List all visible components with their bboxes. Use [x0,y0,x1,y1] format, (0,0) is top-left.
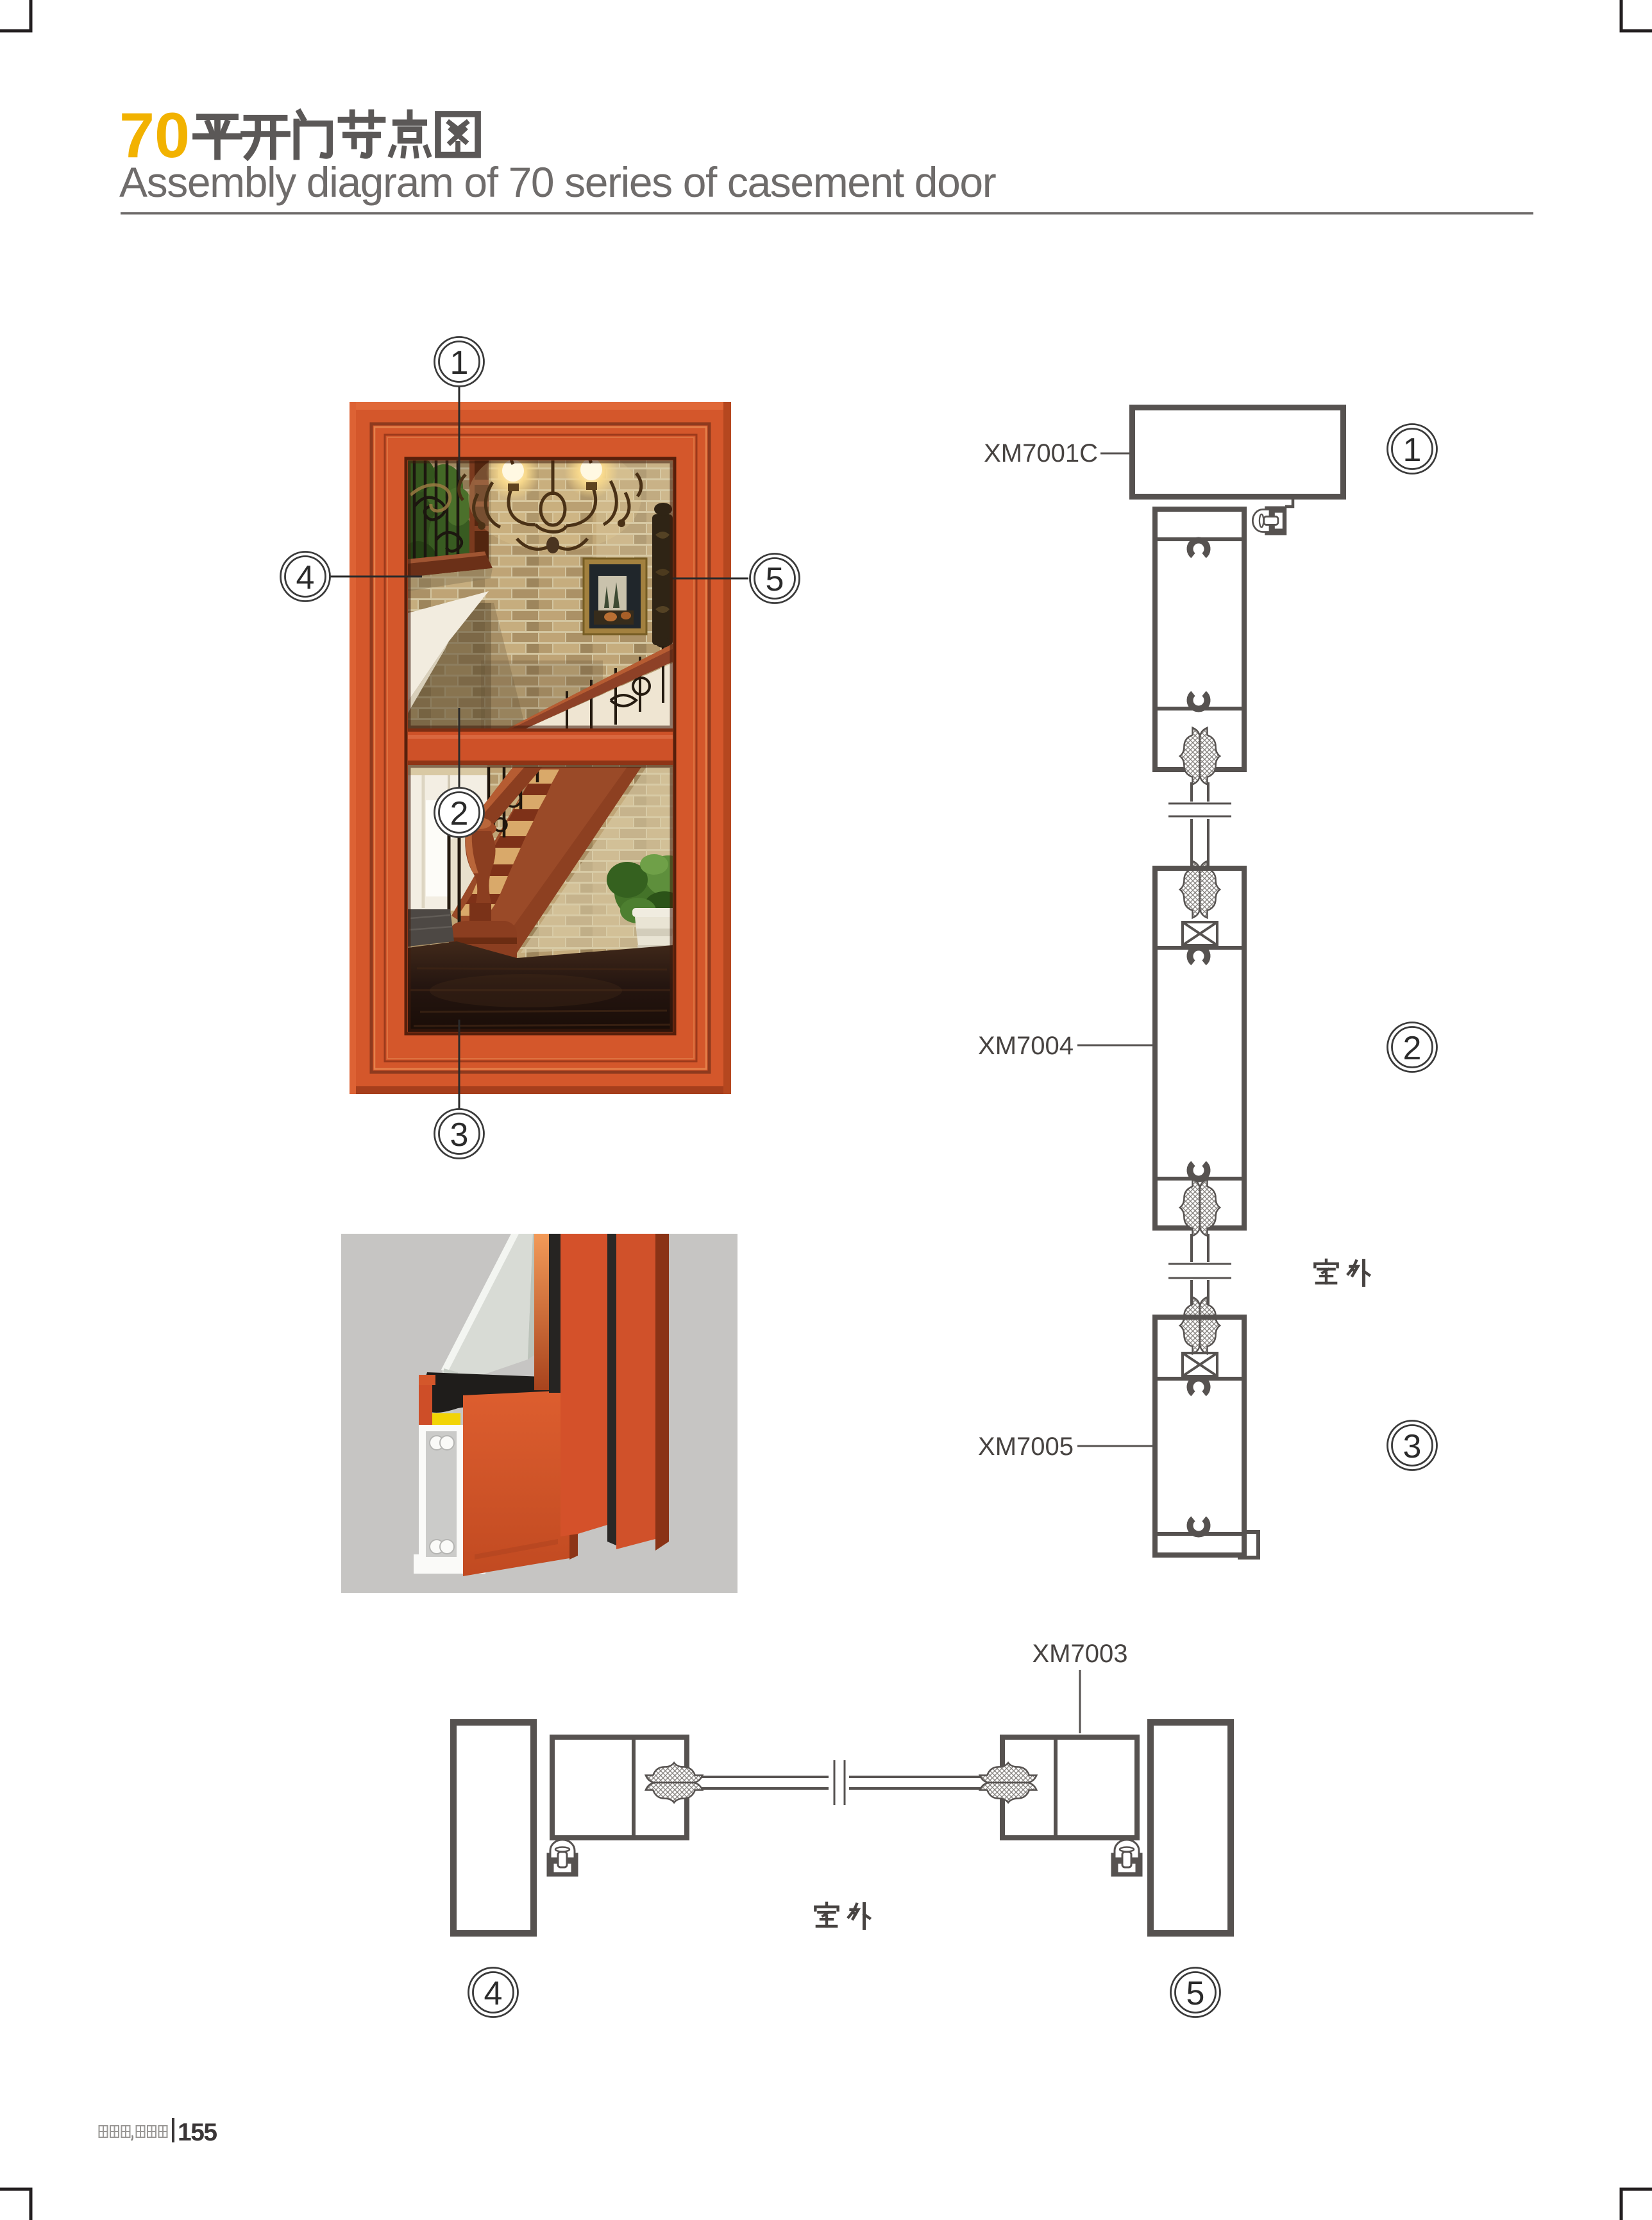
svg-text:4: 4 [296,559,315,596]
svg-text:Assembly diagram of 70 series: Assembly diagram of 70 series of casemen… [119,158,996,206]
svg-text:2: 2 [1403,1030,1422,1067]
svg-text:XM7004: XM7004 [978,1032,1074,1060]
svg-text:XM7003: XM7003 [1032,1640,1128,1668]
svg-text:5: 5 [1186,1975,1205,2012]
svg-text:4: 4 [484,1975,503,2012]
svg-text:3: 3 [450,1116,469,1154]
svg-text:155: 155 [178,2119,217,2146]
svg-text:XM7001C: XM7001C [984,439,1098,467]
svg-text:1: 1 [1403,432,1422,469]
svg-text:5: 5 [766,561,784,598]
svg-text:3: 3 [1403,1428,1422,1465]
svg-text:2: 2 [450,795,469,832]
svg-text:XM7005: XM7005 [978,1433,1074,1461]
svg-text:1: 1 [450,344,469,382]
